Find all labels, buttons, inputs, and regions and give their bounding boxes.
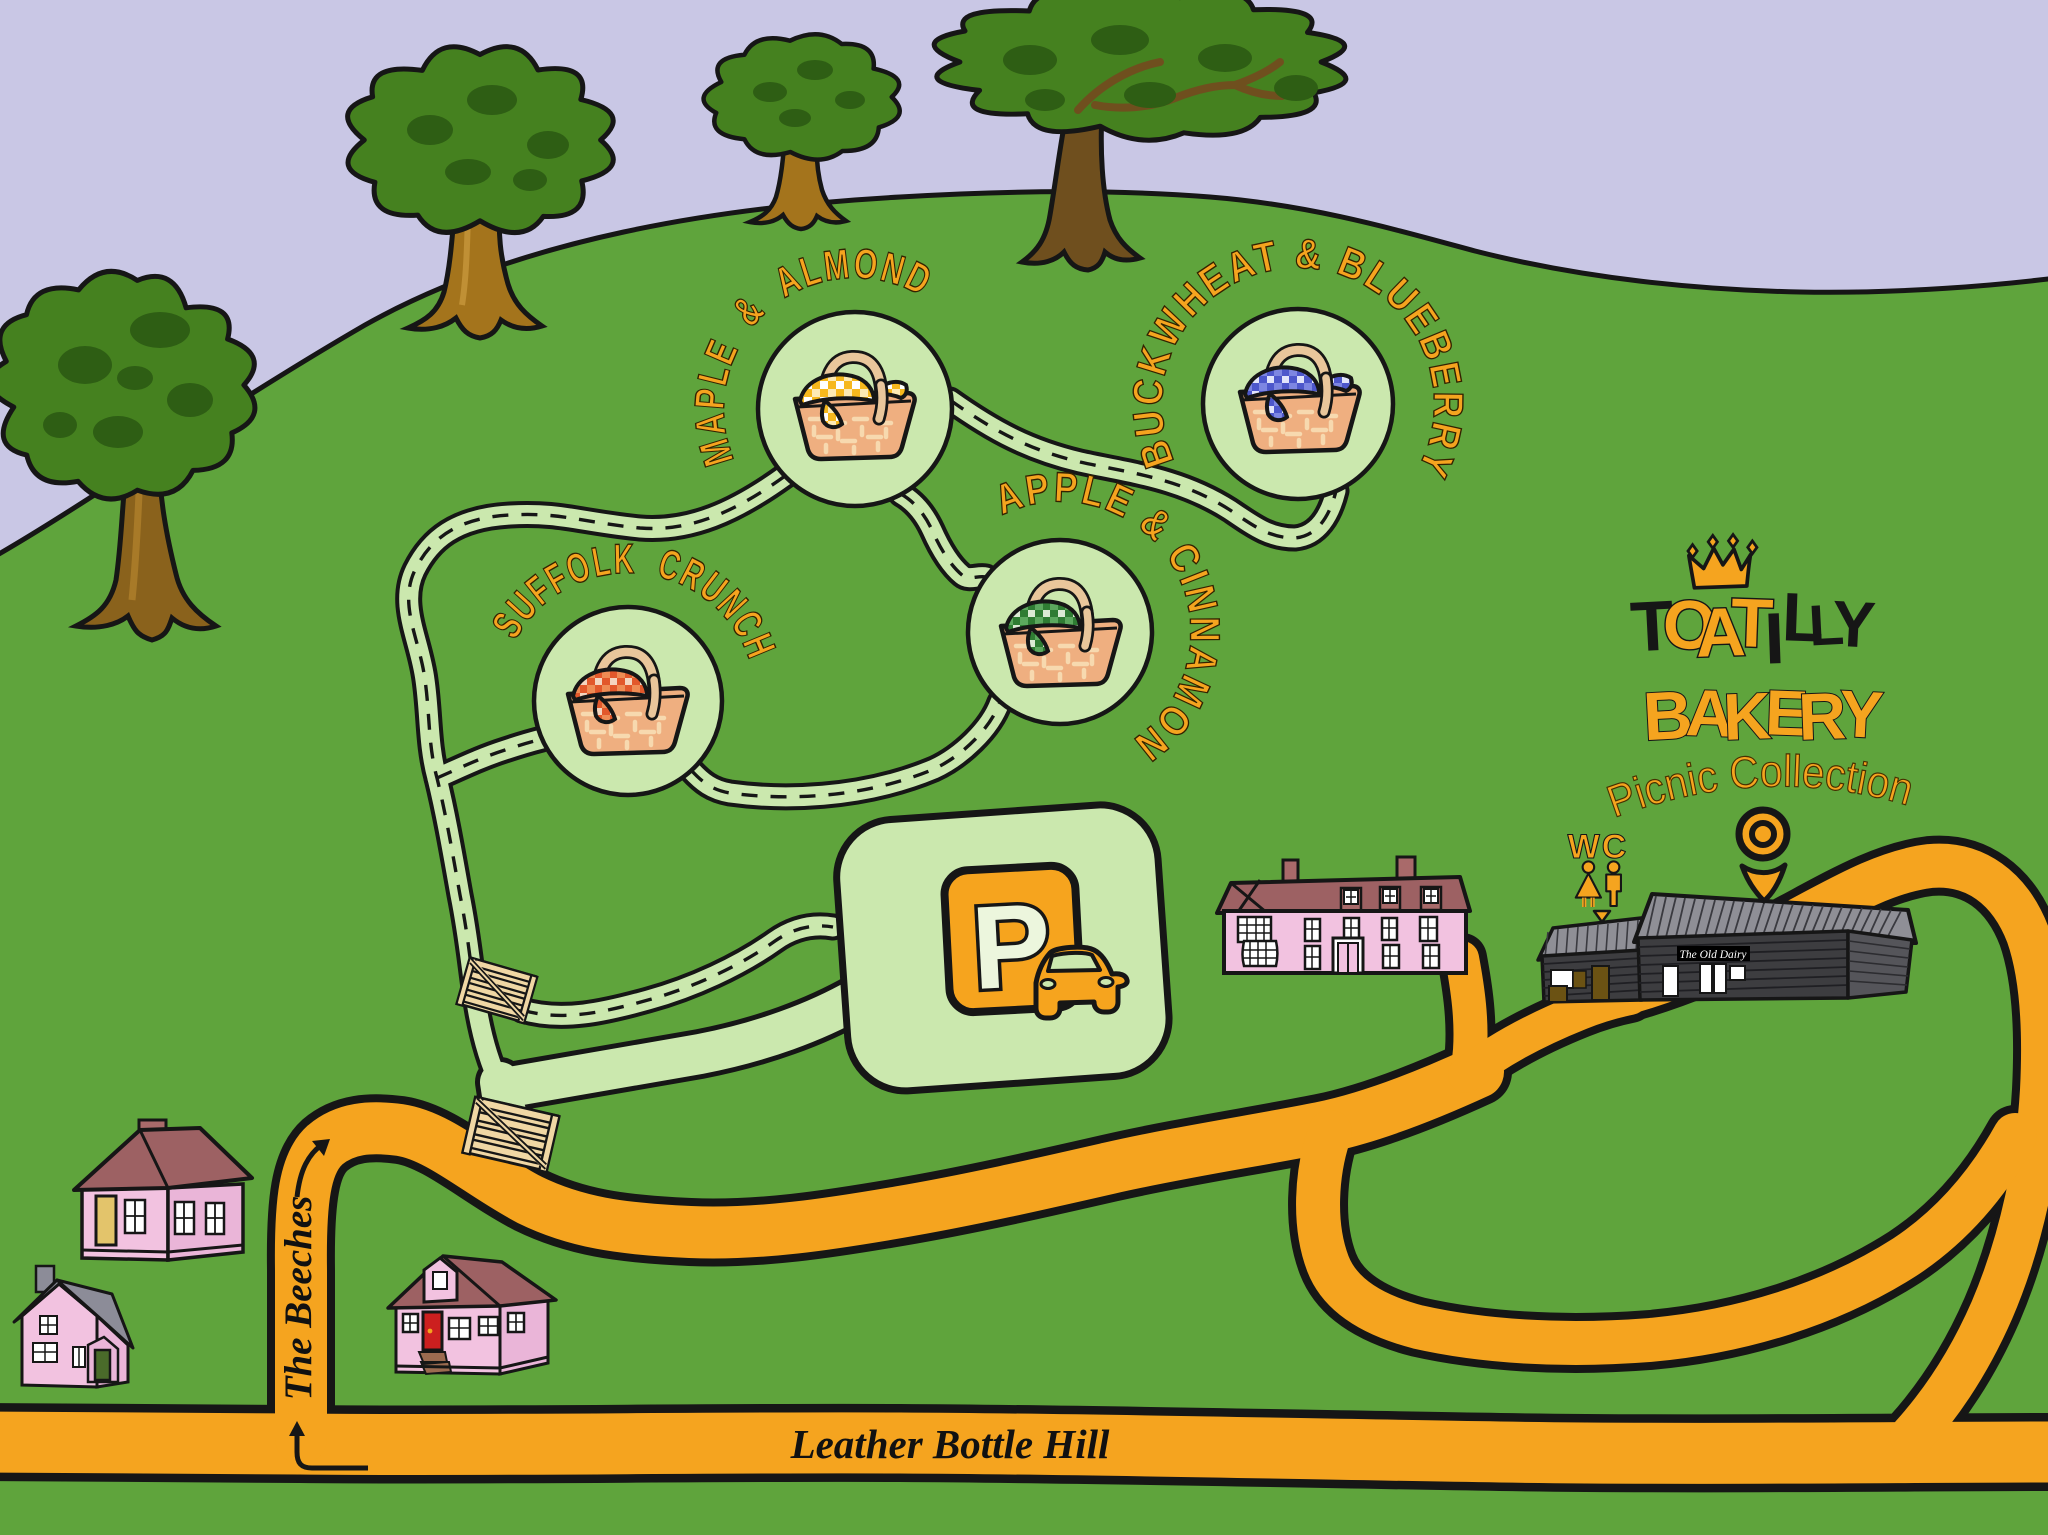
svg-text:Y: Y bbox=[1830, 587, 1877, 662]
svg-text:WC: WC bbox=[1568, 828, 1629, 866]
svg-text:Leather Bottle Hill: Leather Bottle Hill bbox=[790, 1421, 1110, 1467]
svg-text:The Beeches: The Beeches bbox=[277, 1196, 320, 1401]
svg-text:The Old Dairy: The Old Dairy bbox=[1679, 949, 1747, 961]
svg-text:Y: Y bbox=[1837, 676, 1885, 752]
